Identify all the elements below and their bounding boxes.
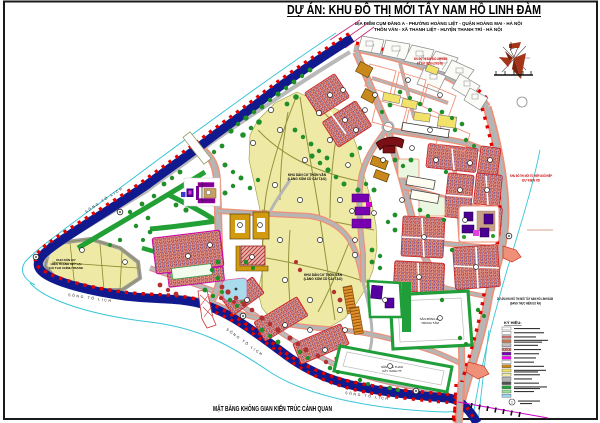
svg-text:DỰ ÁN: KHU ĐÔ THỊ MỚI TÂY NAM: DỰ ÁN: KHU ĐÔ THỊ MỚI TÂY NAM HỒ LINH ĐÀ… xyxy=(287,2,541,17)
svg-text:ĐÃ XÂY DỰNG (2002-03): ĐÃ XÂY DỰNG (2002-03) xyxy=(417,61,443,66)
svg-text:KHU ĐÔ THỊ BÁN ĐẢO LINH ĐÀM: KHU ĐÔ THỊ BÁN ĐẢO LINH ĐÀM xyxy=(414,56,447,61)
svg-text:KÝ HIỆU:: KÝ HIỆU: xyxy=(504,320,522,325)
svg-text:(ĐANG THỰC HIỆN DỰ ÁN): (ĐANG THỰC HIỆN DỰ ÁN) xyxy=(510,301,541,306)
svg-text:1: 1 xyxy=(511,400,513,404)
svg-text:(LÀNG XÓM CŨ CẢI TẠO): (LÀNG XÓM CŨ CẢI TẠO) xyxy=(288,176,327,181)
svg-text:DỰ KIẾN XD: DỰ KIẾN XD xyxy=(522,178,540,183)
svg-text:CÂY XANH TT: CÂY XANH TT xyxy=(382,368,402,373)
svg-text:TRUNG TÂM: TRUNG TÂM xyxy=(421,320,439,325)
svg-text:CẢI TẠO CHỈNH TRANG: CẢI TẠO CHỈNH TRANG xyxy=(49,265,84,270)
svg-text:KHU ĐÔ THỊ MỚI TỨ HIỆP-NGŨ HIỆ: KHU ĐÔ THỊ MỚI TỨ HIỆP-NGŨ HIỆP xyxy=(510,173,552,178)
svg-text:(LÀNG XÓM CŨ CẢI TẠO): (LÀNG XÓM CŨ CẢI TẠO) xyxy=(304,276,343,281)
svg-text:DỰ ÁN KHU ĐÔ THỊ MỚI TÂY NAM H: DỰ ÁN KHU ĐÔ THỊ MỚI TÂY NAM HỒ LINH ĐÀM xyxy=(497,296,553,301)
